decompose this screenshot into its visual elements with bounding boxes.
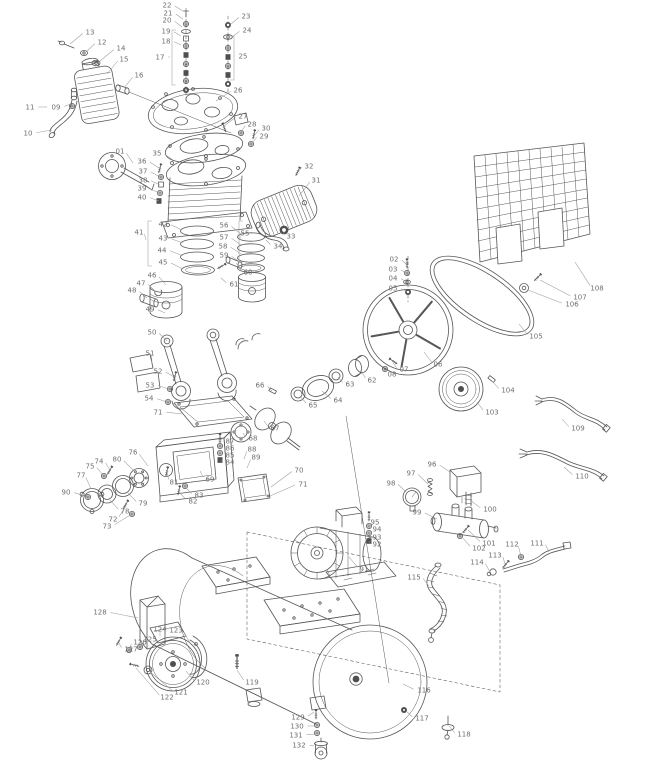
callout-leader-34 xyxy=(266,240,271,245)
callout-leader-49 xyxy=(158,310,165,313)
wheel xyxy=(146,637,200,691)
callout-label-22: 22 xyxy=(163,1,172,9)
callout-leader-47 xyxy=(148,285,156,293)
callout-label-20: 20 xyxy=(163,16,172,24)
callout-leader-36 xyxy=(150,162,159,168)
callout-label-85: 85 xyxy=(226,451,235,459)
callout-leader-02 xyxy=(402,260,406,264)
callout-label-30: 30 xyxy=(262,124,271,132)
callout-leader-122 xyxy=(136,668,159,695)
callout-leader-110 xyxy=(564,467,573,475)
callout-label-109: 109 xyxy=(571,424,584,432)
callout-label-26: 26 xyxy=(234,86,243,94)
callout-label-51: 51 xyxy=(146,349,155,357)
callout-label-68: 68 xyxy=(249,434,258,442)
callout-label-91: 91 xyxy=(360,565,369,573)
callout-label-50: 50 xyxy=(148,328,157,336)
callout-label-56: 56 xyxy=(220,221,229,229)
callout-leader-107 xyxy=(540,280,570,296)
callout-label-116: 116 xyxy=(417,686,431,694)
callout-label-55: 55 xyxy=(241,229,250,237)
callout-leader-13 xyxy=(70,34,83,45)
callout-label-63: 63 xyxy=(346,380,355,388)
callout-label-23: 23 xyxy=(242,12,251,20)
callout-leader-35 xyxy=(165,154,173,160)
callout-label-57: 57 xyxy=(220,233,229,241)
check-valve-nipple xyxy=(465,492,472,506)
callout-layer: 0102030405060708091011121314151617181920… xyxy=(24,1,604,749)
safety-valve xyxy=(428,479,433,496)
drain-hose-assembly xyxy=(48,88,77,139)
caster-foot xyxy=(315,738,328,759)
cylinder-bolt-set xyxy=(157,163,164,204)
callout-leader-39 xyxy=(150,189,159,193)
callout-label-114: 114 xyxy=(470,558,484,566)
callout-bracket-25 xyxy=(230,36,234,80)
callout-leader-01 xyxy=(126,153,133,163)
callout-label-106: 106 xyxy=(565,300,579,308)
callout-leader-42 xyxy=(171,225,182,230)
callout-leader-43 xyxy=(171,239,183,243)
callout-leader-80 xyxy=(124,461,136,473)
callout-label-96: 96 xyxy=(428,460,437,468)
callout-label-110: 110 xyxy=(575,472,588,480)
callout-label-98: 98 xyxy=(387,479,396,487)
callout-leader-86 xyxy=(221,446,222,447)
callout-label-84: 84 xyxy=(226,458,235,466)
callout-label-08: 08 xyxy=(388,370,397,378)
callout-leader-07 xyxy=(393,363,397,368)
callout-leader-104 xyxy=(492,381,499,389)
callout-label-21: 21 xyxy=(164,9,173,17)
callout-leader-119 xyxy=(237,670,244,680)
callout-leader-106 xyxy=(528,290,562,303)
callout-leader-16 xyxy=(124,77,133,88)
callout-leader-115 xyxy=(423,579,429,587)
callout-leader-19 xyxy=(174,32,181,36)
callout-label-67: 67 xyxy=(271,424,280,432)
callout-leader-114 xyxy=(485,564,490,572)
callout-bracket-41 xyxy=(148,221,152,266)
drain-cock xyxy=(442,716,454,739)
callout-leader-18 xyxy=(174,42,181,45)
callout-label-19: 19 xyxy=(162,27,171,35)
callout-label-02: 02 xyxy=(390,255,399,263)
callout-leader-108 xyxy=(575,262,590,286)
callout-label-112: 112 xyxy=(505,540,518,548)
callout-label-120: 120 xyxy=(196,678,209,686)
callout-label-80: 80 xyxy=(113,455,122,463)
callout-label-103: 103 xyxy=(485,408,498,416)
callout-label-36: 36 xyxy=(138,157,147,165)
callout-label-94: 94 xyxy=(373,525,382,533)
callout-label-105: 105 xyxy=(529,332,542,340)
callout-label-25: 25 xyxy=(239,52,248,60)
callout-label-69: 69 xyxy=(206,475,215,483)
callout-label-113: 113 xyxy=(488,551,501,559)
foot-hardware xyxy=(314,709,319,735)
callout-label-122: 122 xyxy=(160,693,173,701)
motor-bolt-set xyxy=(366,511,371,543)
callout-leader-109 xyxy=(562,419,569,427)
callout-label-132: 132 xyxy=(292,741,305,749)
callout-label-73: 73 xyxy=(103,522,112,530)
callout-label-07: 07 xyxy=(400,365,409,373)
exploded-parts-diagram: 0102030405060708091011121314151617181920… xyxy=(0,0,646,768)
callout-label-29: 29 xyxy=(260,132,269,140)
callout-leader-44 xyxy=(170,251,183,256)
callout-leader-88 xyxy=(244,451,247,459)
callout-label-62: 62 xyxy=(368,376,377,384)
callout-leader-78 xyxy=(110,500,118,509)
callout-label-77: 77 xyxy=(77,471,86,479)
callout-label-124: 124 xyxy=(153,625,167,633)
callout-label-13: 13 xyxy=(86,28,95,36)
callout-bracket-17 xyxy=(172,30,176,85)
callout-label-09: 09 xyxy=(52,103,61,111)
callout-leader-123 xyxy=(184,632,190,643)
crankcase-cover-plate xyxy=(238,474,270,502)
callout-label-34: 34 xyxy=(274,242,283,250)
callout-label-03: 03 xyxy=(389,265,398,273)
callout-label-45: 45 xyxy=(159,258,168,266)
callout-label-24: 24 xyxy=(243,26,252,34)
callout-leader-85 xyxy=(221,453,222,454)
callout-label-100: 100 xyxy=(483,505,496,513)
callout-label-88: 88 xyxy=(248,445,257,453)
callout-leader-113 xyxy=(503,557,505,564)
callout-leader-103 xyxy=(477,402,483,410)
connecting-rods xyxy=(161,329,260,409)
callout-label-59: 59 xyxy=(220,251,229,259)
callout-label-41: 41 xyxy=(135,228,144,236)
callout-label-64: 64 xyxy=(334,396,343,404)
callout-leader-06 xyxy=(424,352,432,362)
wheel-strap xyxy=(190,636,207,677)
callout-label-04: 04 xyxy=(389,274,398,282)
callout-leader-75 xyxy=(97,468,104,476)
callout-leader-129 xyxy=(308,712,314,716)
callout-label-33: 33 xyxy=(287,232,296,240)
rod-cap-hardware xyxy=(130,354,177,405)
callout-leader-71 xyxy=(166,412,182,414)
callout-label-16: 16 xyxy=(135,71,144,79)
callout-label-38: 38 xyxy=(139,176,148,184)
callout-label-71: 71 xyxy=(154,408,163,416)
crank-bearing xyxy=(329,369,343,383)
callout-label-83: 83 xyxy=(195,491,204,499)
callout-label-92: 92 xyxy=(373,540,382,548)
callout-label-47: 47 xyxy=(137,279,146,287)
callout-label-37: 37 xyxy=(139,167,148,175)
callout-label-39: 39 xyxy=(138,184,147,192)
callout-label-127: 127 xyxy=(124,645,137,653)
callout-leader-105 xyxy=(519,324,527,334)
callout-label-40: 40 xyxy=(138,193,147,201)
callout-label-27: 27 xyxy=(239,112,248,120)
callout-label-129: 129 xyxy=(291,713,304,721)
callout-label-95: 95 xyxy=(371,518,380,526)
callout-label-89: 89 xyxy=(252,453,261,461)
pressure-switch xyxy=(450,466,481,503)
callout-label-75: 75 xyxy=(86,462,95,470)
callout-label-111: 111 xyxy=(530,539,543,547)
crank-hub xyxy=(349,356,369,377)
callout-label-18: 18 xyxy=(162,37,171,45)
callout-leader-97 xyxy=(418,475,428,484)
callout-label-10: 10 xyxy=(24,129,33,137)
transfer-tube xyxy=(255,222,289,251)
callout-leader-68 xyxy=(243,433,246,437)
callout-label-118: 118 xyxy=(457,730,470,738)
callout-label-99: 99 xyxy=(413,508,422,516)
callout-label-65: 65 xyxy=(309,401,318,409)
callout-label-121: 121 xyxy=(174,688,187,696)
callout-label-11: 11 xyxy=(26,103,35,111)
callout-label-35: 35 xyxy=(153,149,162,157)
callout-label-17: 17 xyxy=(156,53,165,61)
callout-label-42: 42 xyxy=(159,220,168,228)
air-filter-assembly xyxy=(58,41,129,125)
callout-label-86: 86 xyxy=(226,444,235,452)
callout-label-79: 79 xyxy=(139,499,148,507)
callout-label-48: 48 xyxy=(128,286,137,294)
callout-label-01: 01 xyxy=(116,147,125,155)
piston-right xyxy=(239,273,266,303)
filter-fitting xyxy=(116,85,129,94)
callout-label-78: 78 xyxy=(121,507,130,515)
callout-label-123: 123 xyxy=(169,626,182,634)
callout-label-76: 76 xyxy=(129,448,138,456)
callout-label-06: 06 xyxy=(434,360,443,368)
callout-leader-132 xyxy=(310,745,314,746)
callout-label-60: 60 xyxy=(244,268,253,276)
callout-label-119: 119 xyxy=(245,678,258,686)
bearing-cover-train xyxy=(80,465,148,516)
callout-leader-71 xyxy=(270,485,295,496)
callout-label-14: 14 xyxy=(117,44,126,52)
callout-label-104: 104 xyxy=(501,386,515,394)
callout-label-46: 46 xyxy=(148,271,157,279)
callout-label-128: 128 xyxy=(93,608,106,616)
callout-label-108: 108 xyxy=(590,284,603,292)
callout-label-97: 97 xyxy=(407,469,416,477)
callout-label-54: 54 xyxy=(145,394,154,402)
callout-leader-79 xyxy=(127,492,136,501)
callout-label-107: 107 xyxy=(573,293,586,301)
callout-leader-41 xyxy=(145,234,147,240)
motor-pulley xyxy=(439,367,495,411)
callout-label-44: 44 xyxy=(158,246,167,254)
callout-label-12: 12 xyxy=(98,38,107,46)
callout-leader-131 xyxy=(307,734,315,735)
callout-label-87: 87 xyxy=(226,437,235,445)
callout-leader-76 xyxy=(139,454,148,466)
callout-leader-102 xyxy=(461,536,470,546)
callout-leader-96 xyxy=(440,465,450,472)
callout-label-66: 66 xyxy=(256,381,265,389)
callout-leader-116 xyxy=(403,684,414,689)
callout-leader-67 xyxy=(264,421,268,426)
callout-leader-22 xyxy=(175,6,183,11)
callout-leader-46 xyxy=(159,277,166,285)
callout-leader-45 xyxy=(171,263,183,269)
callout-label-90: 90 xyxy=(62,488,71,496)
callout-leader-89 xyxy=(247,459,251,468)
motor-lead-wire xyxy=(519,449,607,481)
callout-leader-98 xyxy=(398,485,406,493)
callout-leader-127 xyxy=(119,643,122,648)
manifold-screws xyxy=(457,525,469,539)
callout-label-43: 43 xyxy=(159,234,168,242)
callout-label-115: 115 xyxy=(407,573,420,581)
callout-label-74: 74 xyxy=(95,457,104,465)
callout-label-131: 131 xyxy=(289,731,302,739)
braided-hose xyxy=(427,563,447,642)
callout-leader-70 xyxy=(271,472,292,487)
callout-label-31: 31 xyxy=(312,176,321,184)
callout-label-71: 71 xyxy=(299,480,308,488)
callout-label-32: 32 xyxy=(305,162,314,170)
cylinder-block xyxy=(162,150,252,238)
callout-label-93: 93 xyxy=(373,533,382,541)
callout-label-49: 49 xyxy=(146,305,155,313)
callout-leader-24 xyxy=(231,31,240,38)
callout-label-117: 117 xyxy=(415,714,428,722)
callout-label-58: 58 xyxy=(219,242,228,250)
callout-leader-61 xyxy=(221,278,226,283)
callout-leader-91 xyxy=(349,557,357,567)
callout-leader-26 xyxy=(216,91,231,101)
callout-label-52: 52 xyxy=(154,367,163,375)
callout-label-61: 61 xyxy=(230,280,239,288)
callout-label-53: 53 xyxy=(146,381,155,389)
callout-label-28: 28 xyxy=(248,120,257,128)
callout-leader-74 xyxy=(106,463,111,470)
callout-leader-23 xyxy=(230,18,239,26)
callout-leader-09 xyxy=(64,104,71,106)
head-bolt-set-right xyxy=(224,22,233,87)
head-gasket xyxy=(163,129,244,168)
callout-label-102: 102 xyxy=(472,544,485,552)
callout-leader-21 xyxy=(176,14,183,19)
callout-leader-12 xyxy=(86,44,95,52)
callout-leader-69 xyxy=(200,471,203,477)
grille-screw-set xyxy=(520,273,543,293)
callout-leader-87 xyxy=(221,439,222,440)
callout-leader-14 xyxy=(100,50,114,61)
assembly-axis-lines xyxy=(129,8,500,692)
flange-ring xyxy=(299,371,337,404)
callout-label-05: 05 xyxy=(389,284,398,292)
fan-grille xyxy=(474,143,590,264)
callout-label-15: 15 xyxy=(120,55,129,63)
callout-label-130: 130 xyxy=(290,722,303,730)
callout-leader-77 xyxy=(86,477,91,489)
callout-leader-20 xyxy=(175,21,182,27)
callout-leader-27 xyxy=(224,117,236,126)
callout-label-70: 70 xyxy=(295,466,304,474)
callout-label-81: 81 xyxy=(170,478,179,486)
callout-leader-50 xyxy=(159,334,167,342)
